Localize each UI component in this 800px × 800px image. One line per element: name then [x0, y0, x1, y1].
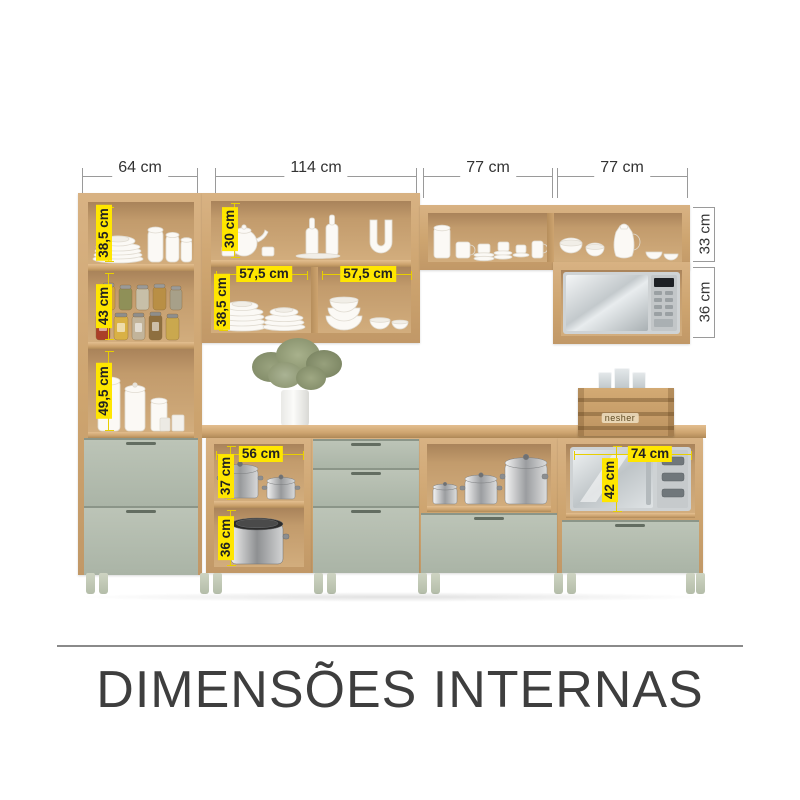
- dimension-label-114cm: 114 cm: [284, 159, 347, 177]
- shelf-board: [88, 342, 194, 349]
- jug-and-bowls-graphic: [554, 214, 682, 262]
- dimension-label-77cm-2: 77 cm: [594, 159, 650, 177]
- bracket-36cm-label: 36 cm: [697, 279, 714, 326]
- drawer-handle: [615, 524, 645, 527]
- cabinet-leg: [327, 573, 336, 594]
- crate-slat: [578, 426, 674, 430]
- ydim-43-label: 43 cm: [96, 284, 112, 328]
- ydim-37-label: 37 cm: [218, 454, 234, 498]
- cabinet-leg: [99, 573, 108, 594]
- mugs-and-cups-graphic: [428, 214, 547, 262]
- ydim-495-label: 49,5 cm: [96, 363, 112, 419]
- wooden-crate: nesher: [578, 388, 674, 436]
- ydim-36b-label: 36 cm: [218, 516, 234, 560]
- drawer-handle: [126, 442, 156, 445]
- cabinet-leg: [86, 573, 95, 594]
- base-drawer-right: [562, 520, 699, 573]
- ydim-575L-label: 57,5 cm: [236, 266, 292, 282]
- ydim-385b-label: 38,5 cm: [214, 274, 230, 330]
- shelf-board: [214, 501, 304, 508]
- cabinet-leg: [686, 573, 695, 594]
- ydim-42-label: 42 cm: [602, 458, 618, 502]
- divider-line: [57, 645, 743, 647]
- teapot-and-vases-graphic: [214, 206, 410, 259]
- ydim-385-label: 38,5 cm: [96, 205, 112, 261]
- drawer-handle: [126, 510, 156, 513]
- drawer-handle: [351, 443, 381, 446]
- cabinet-leg: [554, 573, 563, 594]
- ydim-30-label: 30 cm: [222, 207, 238, 251]
- crate-post: [578, 388, 584, 436]
- cabinet-leg: [431, 573, 440, 594]
- compartment-divider: [311, 267, 318, 333]
- shelf-board: [427, 506, 551, 512]
- dimension-label-64cm: 64 cm: [112, 159, 168, 177]
- compartment-divider: [547, 213, 554, 262]
- ydim-56-label: 56 cm: [239, 446, 283, 462]
- cabinet-leg: [200, 573, 209, 594]
- left-cabinet-drawer-1: [84, 438, 198, 508]
- drawer-handle: [351, 510, 381, 513]
- cabinet-leg: [696, 573, 705, 594]
- pot-set-graphic: [429, 448, 549, 506]
- cabinet-leg: [314, 573, 323, 594]
- floor-shadow: [75, 592, 715, 602]
- shelf-board: [88, 264, 194, 271]
- drawer-handle: [474, 517, 504, 520]
- kitchen-internal-dimensions-diagram: 64 cm 114 cm 77 cm 77 cm: [0, 0, 800, 800]
- base-drawer-wide: [421, 513, 557, 573]
- shelf-board: [566, 513, 695, 518]
- crate-post: [668, 388, 674, 436]
- left-cabinet-drawer-2: [84, 506, 198, 575]
- ydim-74-label: 74 cm: [628, 446, 672, 462]
- crate-brand-label: nesher: [602, 413, 639, 423]
- cabinet-leg: [213, 573, 222, 594]
- microwave-upper-graphic: [563, 272, 680, 334]
- cabinet-leg: [567, 573, 576, 594]
- dimension-label-77cm-1: 77 cm: [460, 159, 516, 177]
- bracket-33cm-label: 33 cm: [697, 211, 714, 258]
- page-title: DIMENSÕES INTERNAS: [0, 660, 800, 720]
- drawer-handle: [351, 472, 381, 475]
- base-drawer-3: [313, 506, 419, 573]
- crate-slat: [578, 398, 674, 402]
- plant-vase: [281, 390, 309, 428]
- cabinet-leg: [418, 573, 427, 594]
- ydim-575R-label: 57,5 cm: [340, 266, 396, 282]
